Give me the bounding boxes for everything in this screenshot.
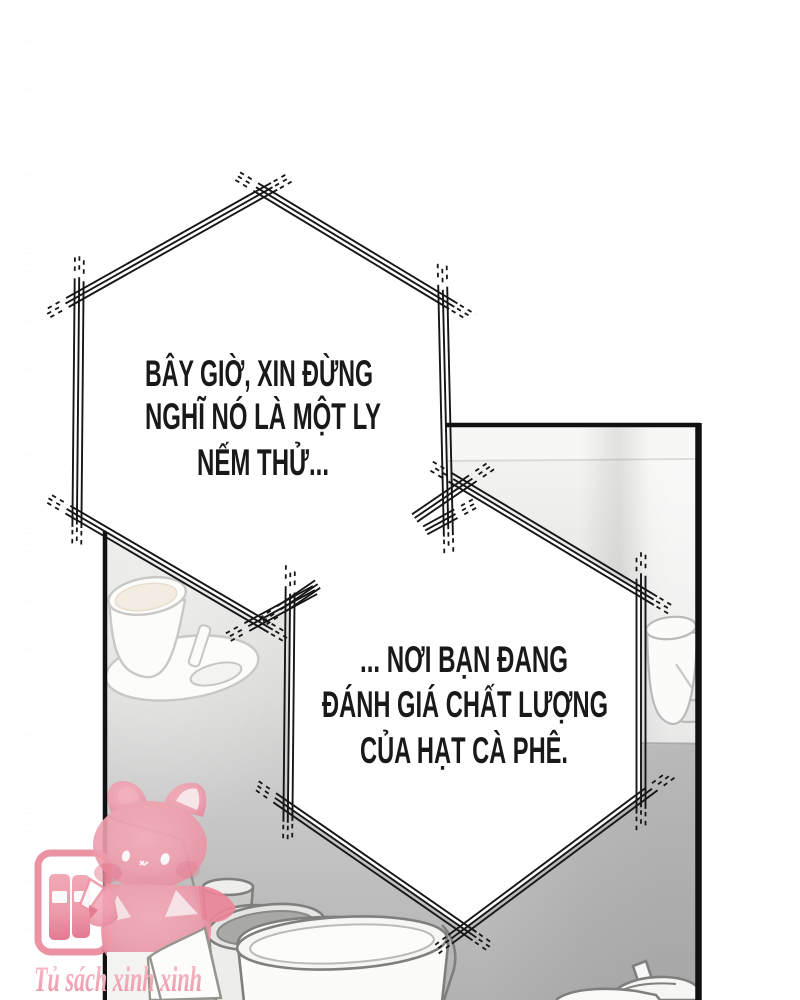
svg-text:Tủ sách xinh: Tủ sách xinh	[17, 440, 39, 553]
svg-text:... NƠI BẠN ĐANG: ... NƠI BẠN ĐANG	[360, 639, 568, 680]
svg-text:CỦA HẠT CÀ PHÊ.: CỦA HẠT CÀ PHÊ.	[360, 729, 568, 771]
svg-text:Tủ sách xinh: Tủ sách xinh	[17, 720, 39, 833]
svg-text:Tủ sách xinh xinh: Tủ sách xinh xinh	[34, 959, 202, 999]
svg-text:Tủ sách xinh: Tủ sách xinh	[17, 20, 39, 133]
svg-text:NGHĨ NÓ LÀ MỘT LY: NGHĨ NÓ LÀ MỘT LY	[145, 395, 381, 437]
svg-text:Tủ sách xinh: Tủ sách xinh	[17, 860, 39, 973]
svg-text:Tủ sách xinh: Tủ sách xinh	[17, 580, 39, 693]
svg-text:ĐÁNH GIÁ CHẤT LƯỢNG: ĐÁNH GIÁ CHẤT LƯỢNG	[322, 684, 608, 725]
svg-text:Tủ sách xinh: Tủ sách xinh	[17, 300, 39, 413]
svg-text:BÂY GIỜ, XIN ĐỪNG: BÂY GIỜ, XIN ĐỪNG	[145, 352, 373, 394]
svg-text:Tủ sách xinh: Tủ sách xinh	[17, 160, 39, 273]
svg-text:NẾM THỬ...: NẾM THỬ...	[197, 441, 329, 483]
